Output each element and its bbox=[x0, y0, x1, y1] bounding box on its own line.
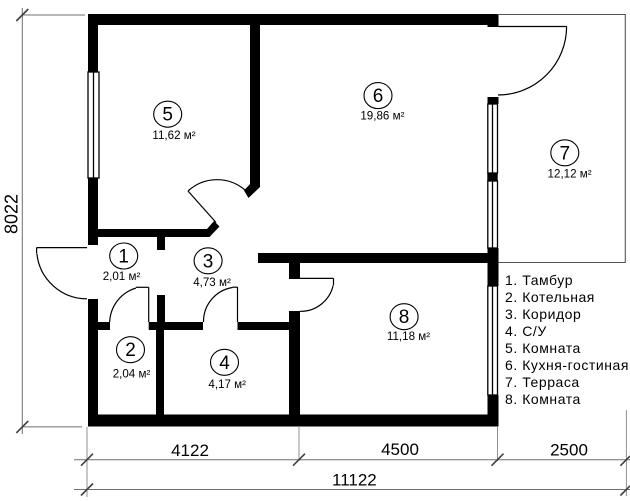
svg-text:12,12 м²: 12,12 м² bbox=[548, 167, 592, 180]
svg-text:4122: 4122 bbox=[171, 441, 209, 460]
svg-text:2: 2 bbox=[125, 340, 136, 361]
svg-text:1: 1 bbox=[118, 247, 129, 268]
svg-text:3. Коридор: 3. Коридор bbox=[505, 306, 581, 322]
svg-text:7: 7 bbox=[560, 143, 571, 164]
svg-text:2. Котельная: 2. Котельная bbox=[505, 289, 595, 305]
svg-text:6. Кухня-гостиная: 6. Кухня-гостиная bbox=[505, 357, 629, 373]
svg-text:5. Комната: 5. Комната bbox=[505, 340, 581, 356]
svg-text:11,62 м²: 11,62 м² bbox=[152, 129, 195, 142]
svg-text:3: 3 bbox=[203, 251, 214, 272]
svg-text:2500: 2500 bbox=[550, 441, 588, 460]
svg-text:8: 8 bbox=[399, 307, 410, 328]
svg-text:2,04 м²: 2,04 м² bbox=[113, 368, 151, 381]
svg-text:4500: 4500 bbox=[381, 440, 419, 459]
svg-text:7. Терраса: 7. Терраса bbox=[505, 374, 580, 390]
svg-text:19,86 м²: 19,86 м² bbox=[360, 109, 404, 122]
svg-text:11122: 11122 bbox=[332, 470, 377, 489]
svg-text:5: 5 bbox=[162, 105, 173, 126]
svg-text:1. Тамбур: 1. Тамбур bbox=[505, 272, 573, 288]
svg-text:4,17 м²: 4,17 м² bbox=[208, 378, 246, 391]
svg-text:8. Комната: 8. Комната bbox=[505, 391, 581, 407]
svg-text:2,01 м²: 2,01 м² bbox=[103, 270, 141, 283]
svg-text:8022: 8022 bbox=[2, 194, 22, 234]
svg-text:11,18 м²: 11,18 м² bbox=[387, 330, 430, 343]
svg-text:4,73 м²: 4,73 м² bbox=[193, 276, 231, 289]
svg-text:4. С/У: 4. С/У bbox=[505, 323, 547, 339]
svg-text:4: 4 bbox=[219, 353, 230, 374]
svg-text:6: 6 bbox=[373, 86, 384, 107]
